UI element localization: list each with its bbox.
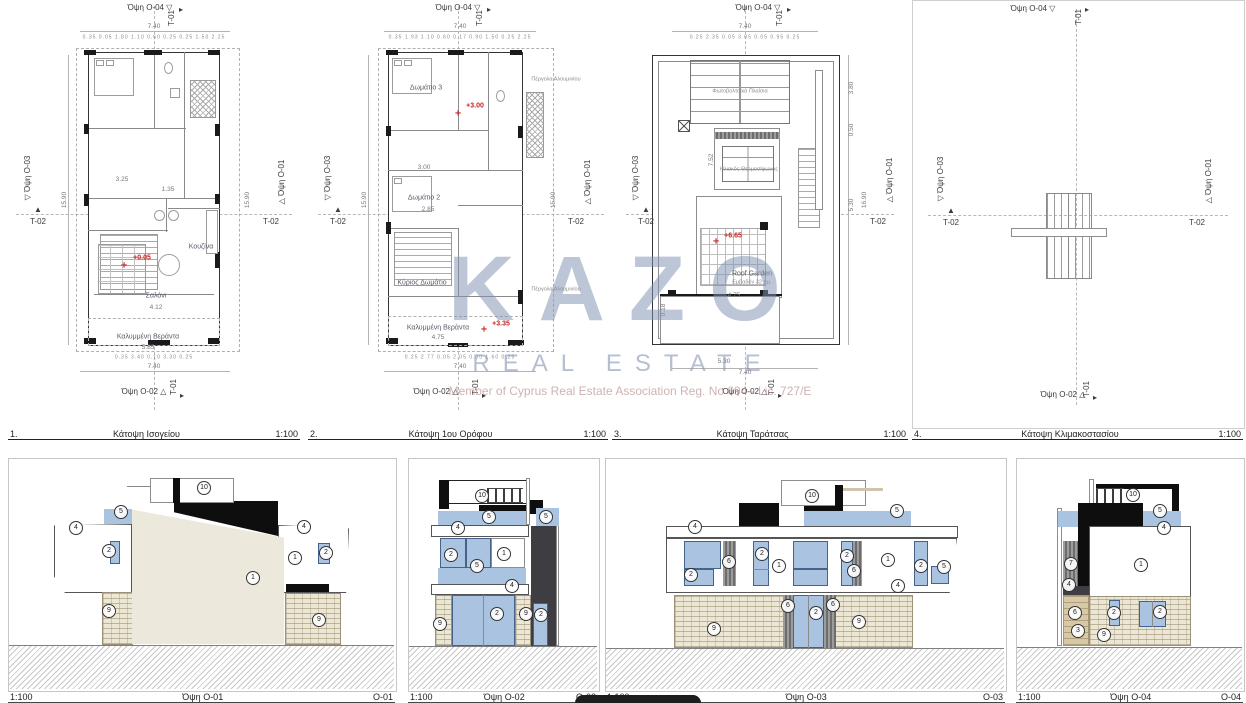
pergola-post	[439, 480, 449, 509]
roof-drain-symbol	[678, 120, 690, 132]
dimension-line	[80, 31, 230, 32]
pergola-beam	[836, 488, 883, 491]
annotation: Όψη O-02 △	[122, 388, 167, 396]
wall-segment	[215, 252, 220, 268]
partition-line	[154, 52, 155, 128]
window-glazing	[793, 569, 828, 586]
ref-badge: 2	[684, 568, 698, 582]
wall-segment	[215, 124, 220, 136]
pillow	[106, 60, 114, 66]
plan-panel-ground-floor: Όψη O-04 ▽T-01▸7.400.35 0.05 1.80 1.10 0…	[8, 0, 300, 425]
annotation: 3.00	[418, 165, 431, 172]
ref-badge: 6	[781, 599, 795, 613]
annotation: 5.30	[718, 359, 731, 366]
ref-badge: 1	[497, 547, 511, 561]
pergola-beam-row	[714, 132, 780, 139]
annotation: ✛	[481, 327, 487, 334]
annotation: 15.90	[62, 192, 69, 208]
annotation: 0.18	[661, 304, 668, 317]
annotation: ▽ Όψη O-03	[24, 156, 32, 201]
wall-segment	[84, 194, 89, 206]
annotation: T-02	[568, 218, 584, 226]
annotation: T-01	[168, 10, 176, 26]
annotation: Κουζίνα	[189, 244, 214, 251]
annotation: 0.25 2.77 0.05 2.05 0.30 1.60 0.25	[405, 356, 515, 361]
ref-badge: 2	[914, 559, 928, 573]
ref-badge: 6	[722, 555, 736, 569]
round-table-furniture	[158, 254, 180, 276]
annotation: Όψη O-02 △	[1041, 391, 1086, 399]
annotation: 15.90	[551, 192, 558, 208]
annotation: 0.35 1.93 1.10 0.60 0.17 0.90 1.50 0.25 …	[389, 36, 532, 41]
wall-segment	[208, 50, 220, 55]
elevation-panel-o04: 105417463229	[1016, 458, 1245, 692]
roof-slab	[739, 503, 779, 526]
annotation: T-01	[776, 10, 784, 26]
plan-panel-roof-terrace: Όψη O-04 ▽T-01▸7.400.25 2.35 0.05 3.05 0…	[612, 0, 908, 425]
black-column	[760, 222, 768, 230]
annotation: 15.90	[245, 192, 252, 208]
annotation: T-01	[1083, 381, 1091, 397]
annotation: 4.12	[150, 305, 163, 312]
annotation: ▽ Όψη O-03	[937, 157, 945, 202]
plan-title-4: 4. Κάτοψη Κλιμακοστασίου 1:100	[912, 427, 1243, 440]
grille-hatch	[526, 92, 544, 158]
ref-badge: 1	[288, 551, 302, 565]
window-glazing	[793, 541, 828, 569]
dimension-line	[384, 371, 536, 372]
ref-badge: 2	[809, 606, 823, 620]
annotation: △ Όψη O-01	[278, 160, 286, 205]
elevation-title-text: Όψη O-01	[33, 692, 373, 702]
plan-scale: 1:100	[883, 429, 906, 439]
annotation: 15.90	[362, 192, 369, 208]
plan-panel-stairwell: Όψη O-04 ▽T-01▸▽ Όψη O-03▲T-02△ Όψη O-01…	[912, 0, 1245, 429]
partition-line	[88, 230, 168, 231]
annotation: Κύριος Δωμάτιο	[397, 280, 446, 287]
dimension-line	[384, 31, 536, 32]
annotation: Καλυμμένη Βεράντα	[117, 334, 179, 341]
plan-scale: 1:100	[583, 429, 606, 439]
plan-title-2: 2. Κάτοψη 1ου Ορόφου 1:100	[308, 427, 608, 440]
ref-badge: 2	[444, 548, 458, 562]
annotation: 0.35 3.40 0.10 3.30 0.25	[115, 356, 193, 361]
ref-badge: 4	[69, 521, 83, 535]
ref-badge: 6	[1068, 606, 1082, 620]
partition-line	[88, 128, 186, 129]
elevation-code: O-01	[373, 692, 393, 702]
plan-number: 4.	[914, 429, 922, 439]
ref-badge: 9	[102, 604, 116, 618]
ref-badge: 9	[519, 607, 533, 621]
wall-segment	[215, 194, 220, 204]
partition-line	[458, 52, 459, 130]
ref-badge: 1	[1134, 558, 1148, 572]
parapet-strip	[815, 70, 823, 210]
white-band	[431, 525, 529, 537]
ref-badge: 9	[433, 617, 447, 631]
wall-segment	[448, 50, 464, 55]
crossbar	[1011, 228, 1107, 237]
annotation: Όψη O-04 ▽	[128, 4, 173, 12]
annotation: ▸	[1085, 6, 1089, 14]
ref-badge: 4	[297, 520, 311, 534]
annotation: Σαλόνι	[146, 293, 167, 300]
ref-badge: 4	[891, 579, 905, 593]
annotation: 7.40	[148, 24, 161, 31]
partition-line	[458, 205, 523, 206]
pillow	[394, 178, 402, 184]
partition-line	[388, 130, 488, 131]
ref-badge: 2	[534, 608, 548, 622]
elevation-title-text: Όψη O-04	[1041, 692, 1221, 702]
annotation: ▸	[1093, 394, 1097, 402]
ref-badge: 5	[937, 560, 951, 574]
ref-badge: 9	[707, 622, 721, 636]
annotation: Δωμάτιο 2	[408, 195, 440, 202]
annotation: 5.85	[142, 345, 155, 352]
annotation: 0.25 2.35 0.05 3.05 0.05 0.95 0.25	[690, 36, 800, 41]
annotation: ▲	[947, 207, 955, 215]
annotation: ▲	[34, 206, 42, 214]
white-post	[1089, 479, 1094, 505]
plan-number: 2.	[310, 429, 318, 439]
wall-segment	[518, 126, 523, 138]
plan-scale: 1:100	[1218, 429, 1241, 439]
plan-panel-first-floor: Όψη O-04 ▽T-01▸7.400.35 1.93 1.10 0.60 0…	[308, 0, 608, 425]
glazing-mullion	[753, 569, 769, 570]
elevation-panel-o01: 10544211299	[8, 458, 397, 692]
partition-line	[184, 52, 185, 198]
annotation: Roof Garden	[732, 271, 772, 278]
annotation: 1.35	[162, 187, 175, 194]
railing	[487, 488, 523, 503]
annotation: ▸	[180, 392, 184, 400]
annotation: T-01	[472, 379, 480, 395]
wall-segment	[386, 126, 391, 136]
ref-badge: 9	[852, 615, 866, 629]
annotation: 7.40	[148, 364, 161, 371]
ref-badge: 6	[847, 564, 861, 578]
table-furniture	[168, 210, 179, 221]
elevation-code: O-04	[1221, 692, 1241, 702]
ref-badge: 2	[755, 547, 769, 561]
annotation: 16.90	[862, 192, 869, 208]
annotation: T-02	[330, 218, 346, 226]
annotation: T-02	[1189, 219, 1205, 227]
ref-badge: 2	[319, 546, 333, 560]
partition-line	[488, 52, 489, 170]
wall-segment	[84, 124, 89, 134]
elevation-panel-o02: 1055421542299	[408, 458, 600, 692]
wall-segment	[510, 50, 522, 55]
ref-badge: 2	[840, 549, 854, 563]
annotation: 7.40	[739, 370, 752, 377]
ref-badge: 3	[1071, 624, 1085, 638]
partition-line	[388, 296, 523, 297]
annotation: T-02	[638, 218, 654, 226]
white-post	[1057, 508, 1062, 646]
ref-badge: 4	[505, 579, 519, 593]
annotation: Δωμάτιο 3	[410, 85, 442, 92]
annotation: 7.52	[709, 154, 716, 167]
annotation: +3.00	[466, 103, 484, 110]
elevation-title-text: Όψη O-02	[433, 692, 576, 702]
annotation: 5.30	[849, 199, 856, 212]
plan-title-3: 3. Κάτοψη Ταράτσας 1:100	[612, 427, 908, 440]
table-furniture	[154, 210, 165, 221]
ref-badge: 5	[890, 504, 904, 518]
annotation: 3.80	[849, 82, 856, 95]
annotation: 4.75	[432, 335, 445, 342]
wall-segment	[660, 294, 782, 296]
ref-badge: 10	[805, 489, 819, 503]
pillow	[404, 60, 412, 66]
pergola-frame	[781, 480, 866, 506]
elevation-scale: 1:100	[410, 692, 433, 702]
annotation: ✛	[121, 263, 127, 270]
annotation: △ Όψη O-01	[886, 158, 894, 203]
white-band	[54, 524, 132, 593]
annotation: ▽ Όψη O-03	[324, 156, 332, 201]
ref-badge: 4	[688, 520, 702, 534]
ground-hatch	[606, 648, 1004, 689]
ref-badge: 7	[1064, 557, 1078, 571]
plan-number: 3.	[614, 429, 622, 439]
annotation: ✛	[713, 239, 719, 246]
ref-badge: 10	[1126, 488, 1140, 502]
ref-badge: 2	[1153, 605, 1167, 619]
wall-segment	[518, 290, 523, 304]
sink-fixture	[170, 88, 180, 98]
annotation: ▸	[179, 6, 183, 14]
annotation: Όψη O-02 △	[414, 388, 459, 396]
stone-cladding	[102, 592, 133, 645]
annotation: ▸	[482, 392, 486, 400]
annotation: Όψη O-04 ▽	[1011, 5, 1056, 13]
elevation-title-4: 1:100 Όψη O-04 O-04	[1016, 691, 1243, 703]
annotation: ▽ Όψη O-03	[632, 156, 640, 201]
annotation: 7.40	[739, 24, 752, 31]
railing	[1096, 488, 1124, 504]
annotation: Ηλιακός Θερμοσίφωνας	[720, 167, 778, 173]
plan-title-1: 1. Κάτοψη Ισογείου 1:100	[8, 427, 300, 440]
annotation: Όψη O-04 ▽	[736, 4, 781, 12]
wall-segment	[84, 50, 96, 55]
plan-title-text: Κάτοψη 1ου Ορόφου	[318, 429, 584, 439]
wall-segment	[144, 50, 162, 55]
roof-slab	[286, 584, 329, 592]
annotation: ▸	[787, 6, 791, 14]
ref-badge: 1	[881, 553, 895, 567]
ground-hatch	[9, 645, 394, 689]
elevation-code: O-03	[983, 692, 1003, 702]
tan-cladding	[1063, 595, 1089, 646]
ref-badge: 5	[539, 510, 553, 524]
annotation: 7.40	[454, 24, 467, 31]
annotation: 0.50	[849, 124, 856, 137]
elevation-title-2: 1:100 Όψη O-02 O-02	[408, 691, 598, 703]
ref-badge: 5	[114, 505, 128, 519]
partition-line	[88, 198, 220, 199]
annotation: T-02	[263, 218, 279, 226]
grille-hatch	[190, 80, 216, 118]
ref-badge: 5	[1153, 504, 1167, 518]
stair-hatch	[394, 232, 452, 286]
ground-hatch	[409, 646, 597, 689]
plan-number: 1.	[10, 429, 18, 439]
annotation: T-01	[170, 379, 178, 395]
annotation: Όψη O-04 ▽	[436, 4, 481, 12]
annotation: ▸	[778, 392, 782, 400]
annotation: T-02	[943, 219, 959, 227]
annotation: +3.35	[492, 321, 510, 328]
partition-line	[388, 170, 523, 171]
annotation: +0.05	[133, 255, 151, 262]
annotation: T-01	[476, 10, 484, 26]
annotation: +6.65	[724, 233, 742, 240]
annotation: T-01	[768, 379, 776, 395]
wall-segment	[386, 222, 391, 234]
annotation: Εμβαδόν 32 τ.μ.	[732, 280, 772, 286]
ref-badge: 2	[490, 607, 504, 621]
plan-title-text: Κάτοψη Ταράτσας	[622, 429, 884, 439]
elevation-title-1: 1:100 Όψη O-01 O-01	[8, 691, 395, 703]
annotation: 7.40	[454, 364, 467, 371]
annotation: Καλυμμένη Βεράντα	[407, 325, 469, 332]
pergola-post	[173, 478, 180, 503]
plan-title-text: Κάτοψη Κλιμακοστασίου	[922, 429, 1219, 439]
annotation: T-01	[1075, 9, 1083, 25]
annotation: ▲	[334, 206, 342, 214]
annotation: Φωτοβολταϊκά Πλαίσια	[712, 89, 767, 95]
taskbar-remnant	[575, 695, 701, 703]
ref-badge: 9	[1097, 628, 1111, 642]
ref-badge: 2	[102, 544, 116, 558]
ref-badge: 4	[451, 521, 465, 535]
ref-badge: 4	[1157, 521, 1171, 535]
veranda-boundary	[88, 318, 220, 346]
white-post	[526, 478, 530, 525]
toilet-fixture	[496, 90, 505, 102]
annotation: ✛	[455, 111, 461, 118]
drawing-sheet: Όψη O-04 ▽T-01▸7.400.35 0.05 1.80 1.10 0…	[0, 0, 1246, 703]
ref-badge: 10	[197, 481, 211, 495]
annotation: Όψη O-02 △	[723, 388, 768, 396]
glazing-mullion	[483, 595, 484, 646]
ref-badge: 5	[470, 559, 484, 573]
annotation: ▲	[642, 206, 650, 214]
elevation-panel-o03: 1054262126125462699	[605, 458, 1007, 692]
annotation: 0.35 0.05 1.80 1.10 0.60 0.25 0.25 1.50 …	[83, 36, 226, 41]
ref-badge: 9	[312, 613, 326, 627]
window-glazing	[684, 541, 721, 569]
ref-badge: 10	[475, 489, 489, 503]
toilet-fixture	[164, 62, 173, 74]
annotation: 4.75	[728, 293, 741, 300]
ref-badge: 6	[826, 598, 840, 612]
ref-badge: 1	[246, 571, 260, 585]
annotation: Πέργολα Αλουμινίου	[531, 287, 580, 293]
pillow	[96, 60, 104, 66]
plan-title-text: Κάτοψη Ισογείου	[18, 429, 276, 439]
partition-line	[458, 228, 459, 296]
wall-segment	[386, 50, 398, 55]
plan-scale: 1:100	[275, 429, 298, 439]
annotation: △ Όψη O-01	[1205, 159, 1213, 204]
pergola-post	[835, 485, 843, 511]
terrace-outline	[660, 296, 780, 344]
ref-badge: 1	[772, 559, 786, 573]
annotation: ▸	[487, 6, 491, 14]
white-post	[556, 514, 559, 646]
pergola-frame	[150, 478, 234, 503]
elevation-scale: 1:100	[1018, 692, 1041, 702]
annotation: T-02	[30, 218, 46, 226]
pillow	[394, 60, 402, 66]
pergola-post	[1172, 484, 1179, 512]
ref-badge: 2	[1107, 606, 1121, 620]
annotation: T-02	[870, 218, 886, 226]
glazing-mullion	[808, 595, 809, 648]
ref-badge: 5	[482, 510, 496, 524]
partition-line	[388, 228, 458, 229]
partition-line	[166, 198, 167, 232]
elevation-scale: 1:100	[10, 692, 33, 702]
annotation: Πέργολα Αλουμινίου	[531, 77, 580, 83]
annotation: 2.85	[422, 207, 435, 214]
annotation: 3.25	[116, 177, 129, 184]
dimension-line	[80, 371, 230, 372]
partition-line	[168, 208, 220, 209]
ref-badge: 4	[1062, 578, 1076, 592]
annotation: △ Όψη O-01	[584, 160, 592, 205]
solar-heater	[722, 146, 774, 182]
white-band	[666, 526, 958, 538]
ground-hatch	[1017, 647, 1242, 689]
